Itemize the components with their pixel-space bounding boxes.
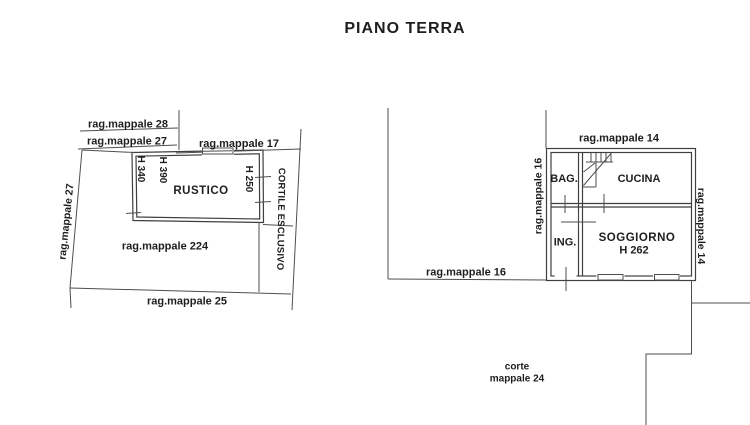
label-height-390: H 390 — [157, 157, 168, 184]
page-background — [0, 0, 750, 425]
floor-plan-canvas: PIANO TERRA rag.mappale 28 rag.mappale 2… — [0, 0, 750, 425]
label-mappale-14-right: rag.mappale 14 — [695, 188, 707, 265]
label-corte-line1: corte — [505, 362, 530, 373]
label-mappale-16-bottom: rag.mappale 16 — [426, 267, 506, 279]
label-room-cucina: CUCINA — [618, 173, 661, 185]
label-mappale-14-top: rag.mappale 14 — [579, 133, 660, 145]
label-height-340: H 340 — [135, 156, 146, 183]
label-room-rustico: RUSTICO — [173, 185, 228, 197]
floor-plan-page: PIANO TERRA rag.mappale 28 rag.mappale 2… — [0, 0, 750, 425]
page-title: PIANO TERRA — [344, 20, 465, 37]
label-room-soggiorno: SOGGIORNO — [599, 232, 676, 244]
label-height-250: H 250 — [243, 166, 254, 193]
label-mappale-27-top: rag.mappale 27 — [87, 136, 167, 148]
label-mappale-16-left: rag.mappale 16 — [533, 158, 545, 235]
label-room-ingresso: ING. — [554, 237, 577, 249]
label-cortile-esclusivo: CORTILE ESCLUSIVO — [274, 168, 287, 271]
label-mappale-17: rag.mappale 17 — [199, 138, 279, 150]
label-height-262: H 262 — [619, 245, 648, 257]
label-mappale-28: rag.mappale 28 — [88, 119, 168, 131]
label-room-bagno: BAG. — [550, 173, 578, 185]
label-corte-line2: mappale 24 — [490, 374, 545, 385]
label-mappale-25: rag.mappale 25 — [147, 296, 227, 308]
label-mappale-224: rag.mappale 224 — [122, 241, 209, 253]
